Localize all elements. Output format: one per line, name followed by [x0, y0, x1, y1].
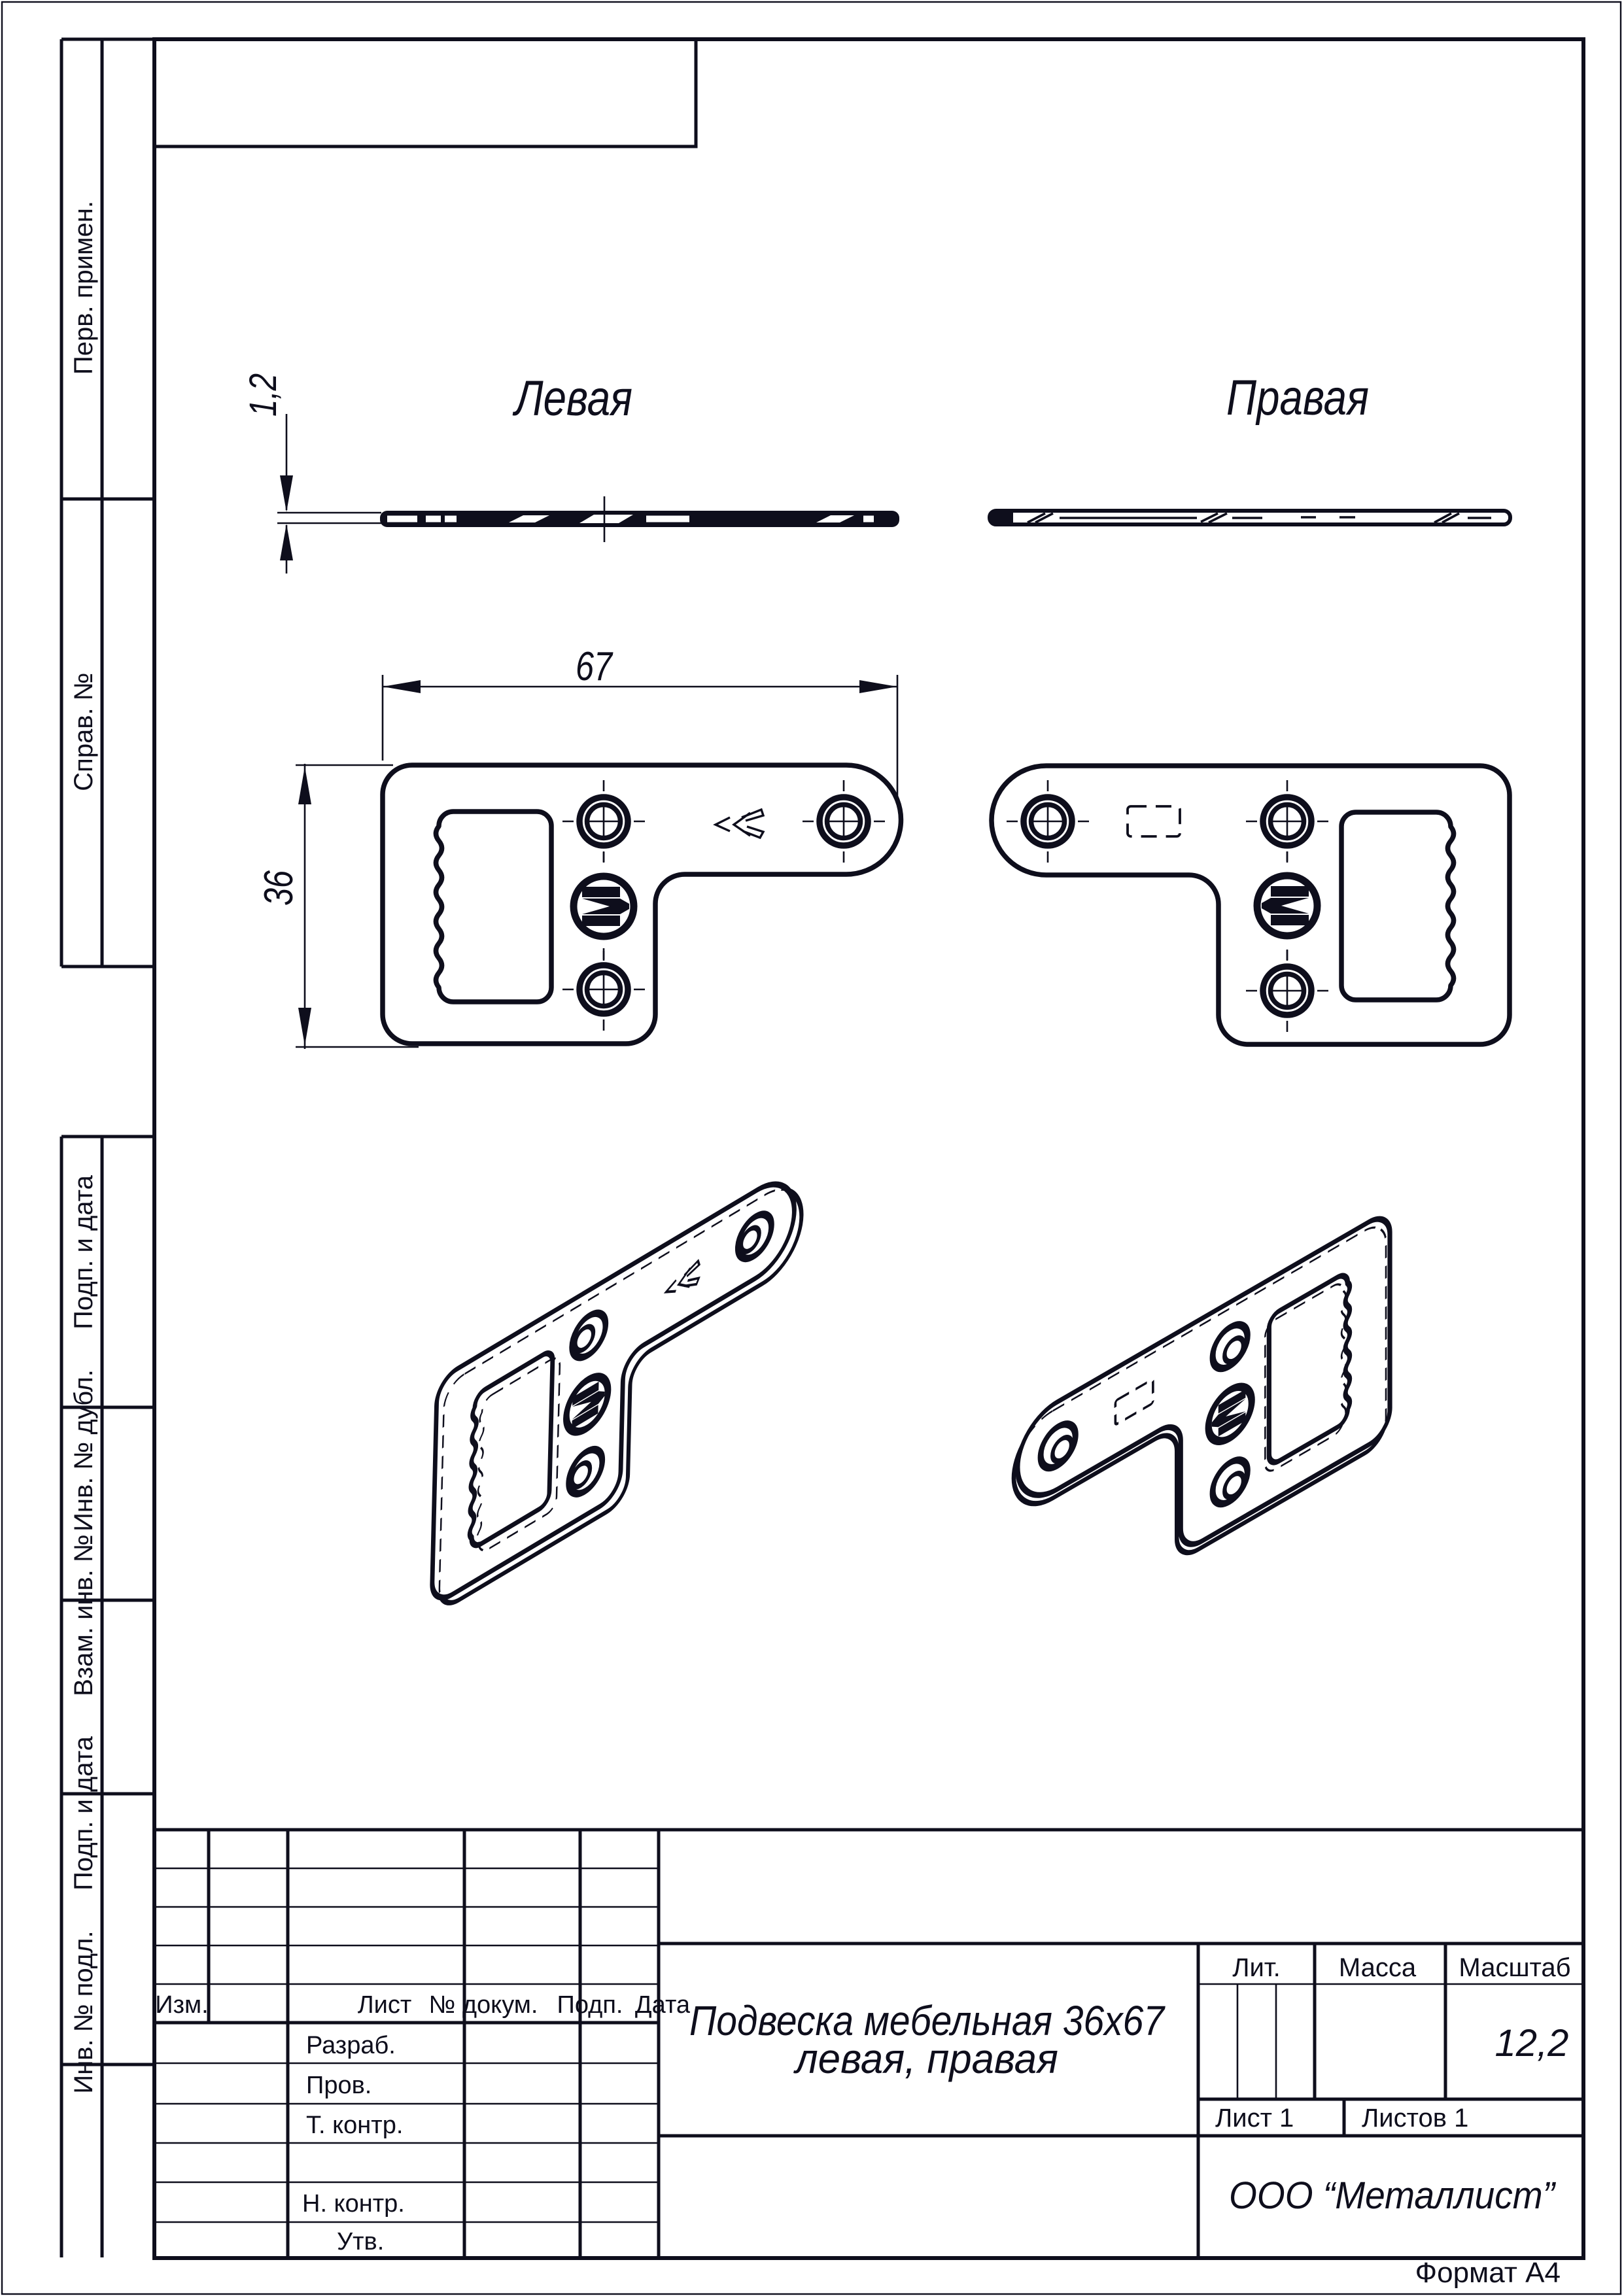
svg-text:Пров.: Пров.	[306, 2072, 371, 2099]
svg-text:№ докум.: № докум.	[429, 1991, 538, 2019]
svg-text:Инв. № подл.: Инв. № подл.	[69, 1930, 98, 2093]
svg-text:левая, правая: левая, правая	[793, 2035, 1058, 2082]
svg-text:ООО “Металлист”: ООО “Металлист”	[1229, 2174, 1557, 2217]
svg-text:Н. контр.: Н. контр.	[302, 2190, 405, 2218]
svg-text:Левая: Левая	[512, 371, 632, 426]
svg-text:Правая: Правая	[1226, 370, 1369, 426]
svg-text:36: 36	[256, 870, 302, 906]
svg-text:Взам. инв. №: Взам. инв. №	[69, 1534, 98, 1696]
svg-text:Разраб.: Разраб.	[306, 2032, 396, 2059]
svg-text:Подп.: Подп.	[557, 1991, 623, 2019]
svg-text:Подп. и дата: Подп. и дата	[69, 1736, 98, 1890]
svg-text:Листов 1: Листов 1	[1362, 2104, 1468, 2133]
svg-text:Лист: Лист	[358, 1991, 412, 2019]
svg-text:12,2: 12,2	[1495, 2022, 1569, 2065]
svg-text:Лит.: Лит.	[1232, 1953, 1281, 1982]
svg-text:Утв.: Утв.	[337, 2228, 384, 2255]
svg-text:Масштаб: Масштаб	[1459, 1953, 1570, 1982]
svg-text:67: 67	[576, 644, 613, 689]
svg-text:Дата: Дата	[635, 1991, 691, 2019]
svg-text:Инв. № дубл.: Инв. № дубл.	[69, 1369, 98, 1532]
svg-text:Лист 1: Лист 1	[1215, 2104, 1294, 2133]
svg-text:Формат А4: Формат А4	[1415, 2257, 1561, 2289]
svg-text:Масса: Масса	[1339, 1953, 1417, 1982]
svg-text:Изм.: Изм.	[155, 1991, 208, 2019]
svg-text:Т. контр.: Т. контр.	[306, 2112, 403, 2139]
svg-text:Перв. примен.: Перв. примен.	[69, 201, 98, 375]
svg-text:Подп. и дата: Подп. и дата	[69, 1174, 98, 1329]
svg-text:1,2: 1,2	[242, 373, 285, 417]
svg-text:Справ. №: Справ. №	[69, 672, 98, 791]
